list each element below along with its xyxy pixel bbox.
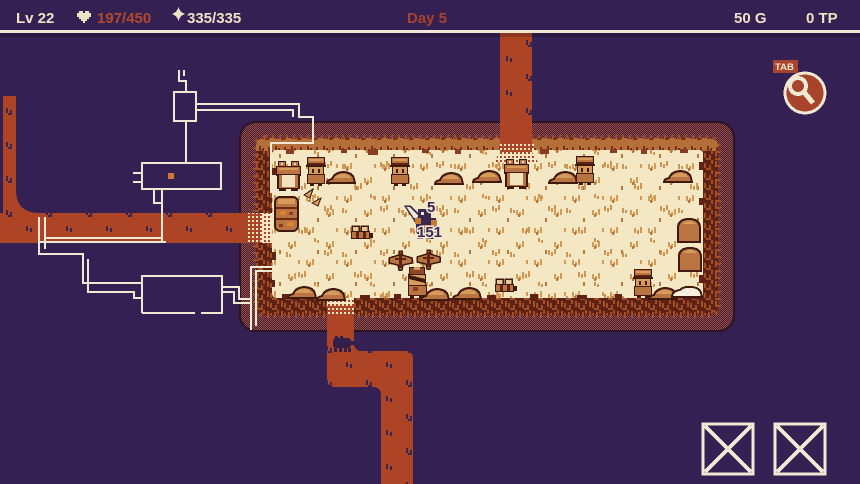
svg-text:50 G: 50 G: [734, 10, 767, 27]
svg-text:151: 151: [417, 224, 442, 241]
svg-text:Lv 22: Lv 22: [16, 10, 54, 27]
svg-text:197/450: 197/450: [97, 10, 151, 27]
svg-text:Day 5: Day 5: [407, 10, 447, 27]
svg-text:5: 5: [427, 199, 435, 216]
svg-text:TAB: TAB: [775, 62, 794, 73]
svg-text:0 TP: 0 TP: [806, 10, 838, 27]
svg-text:335/335: 335/335: [187, 10, 241, 27]
